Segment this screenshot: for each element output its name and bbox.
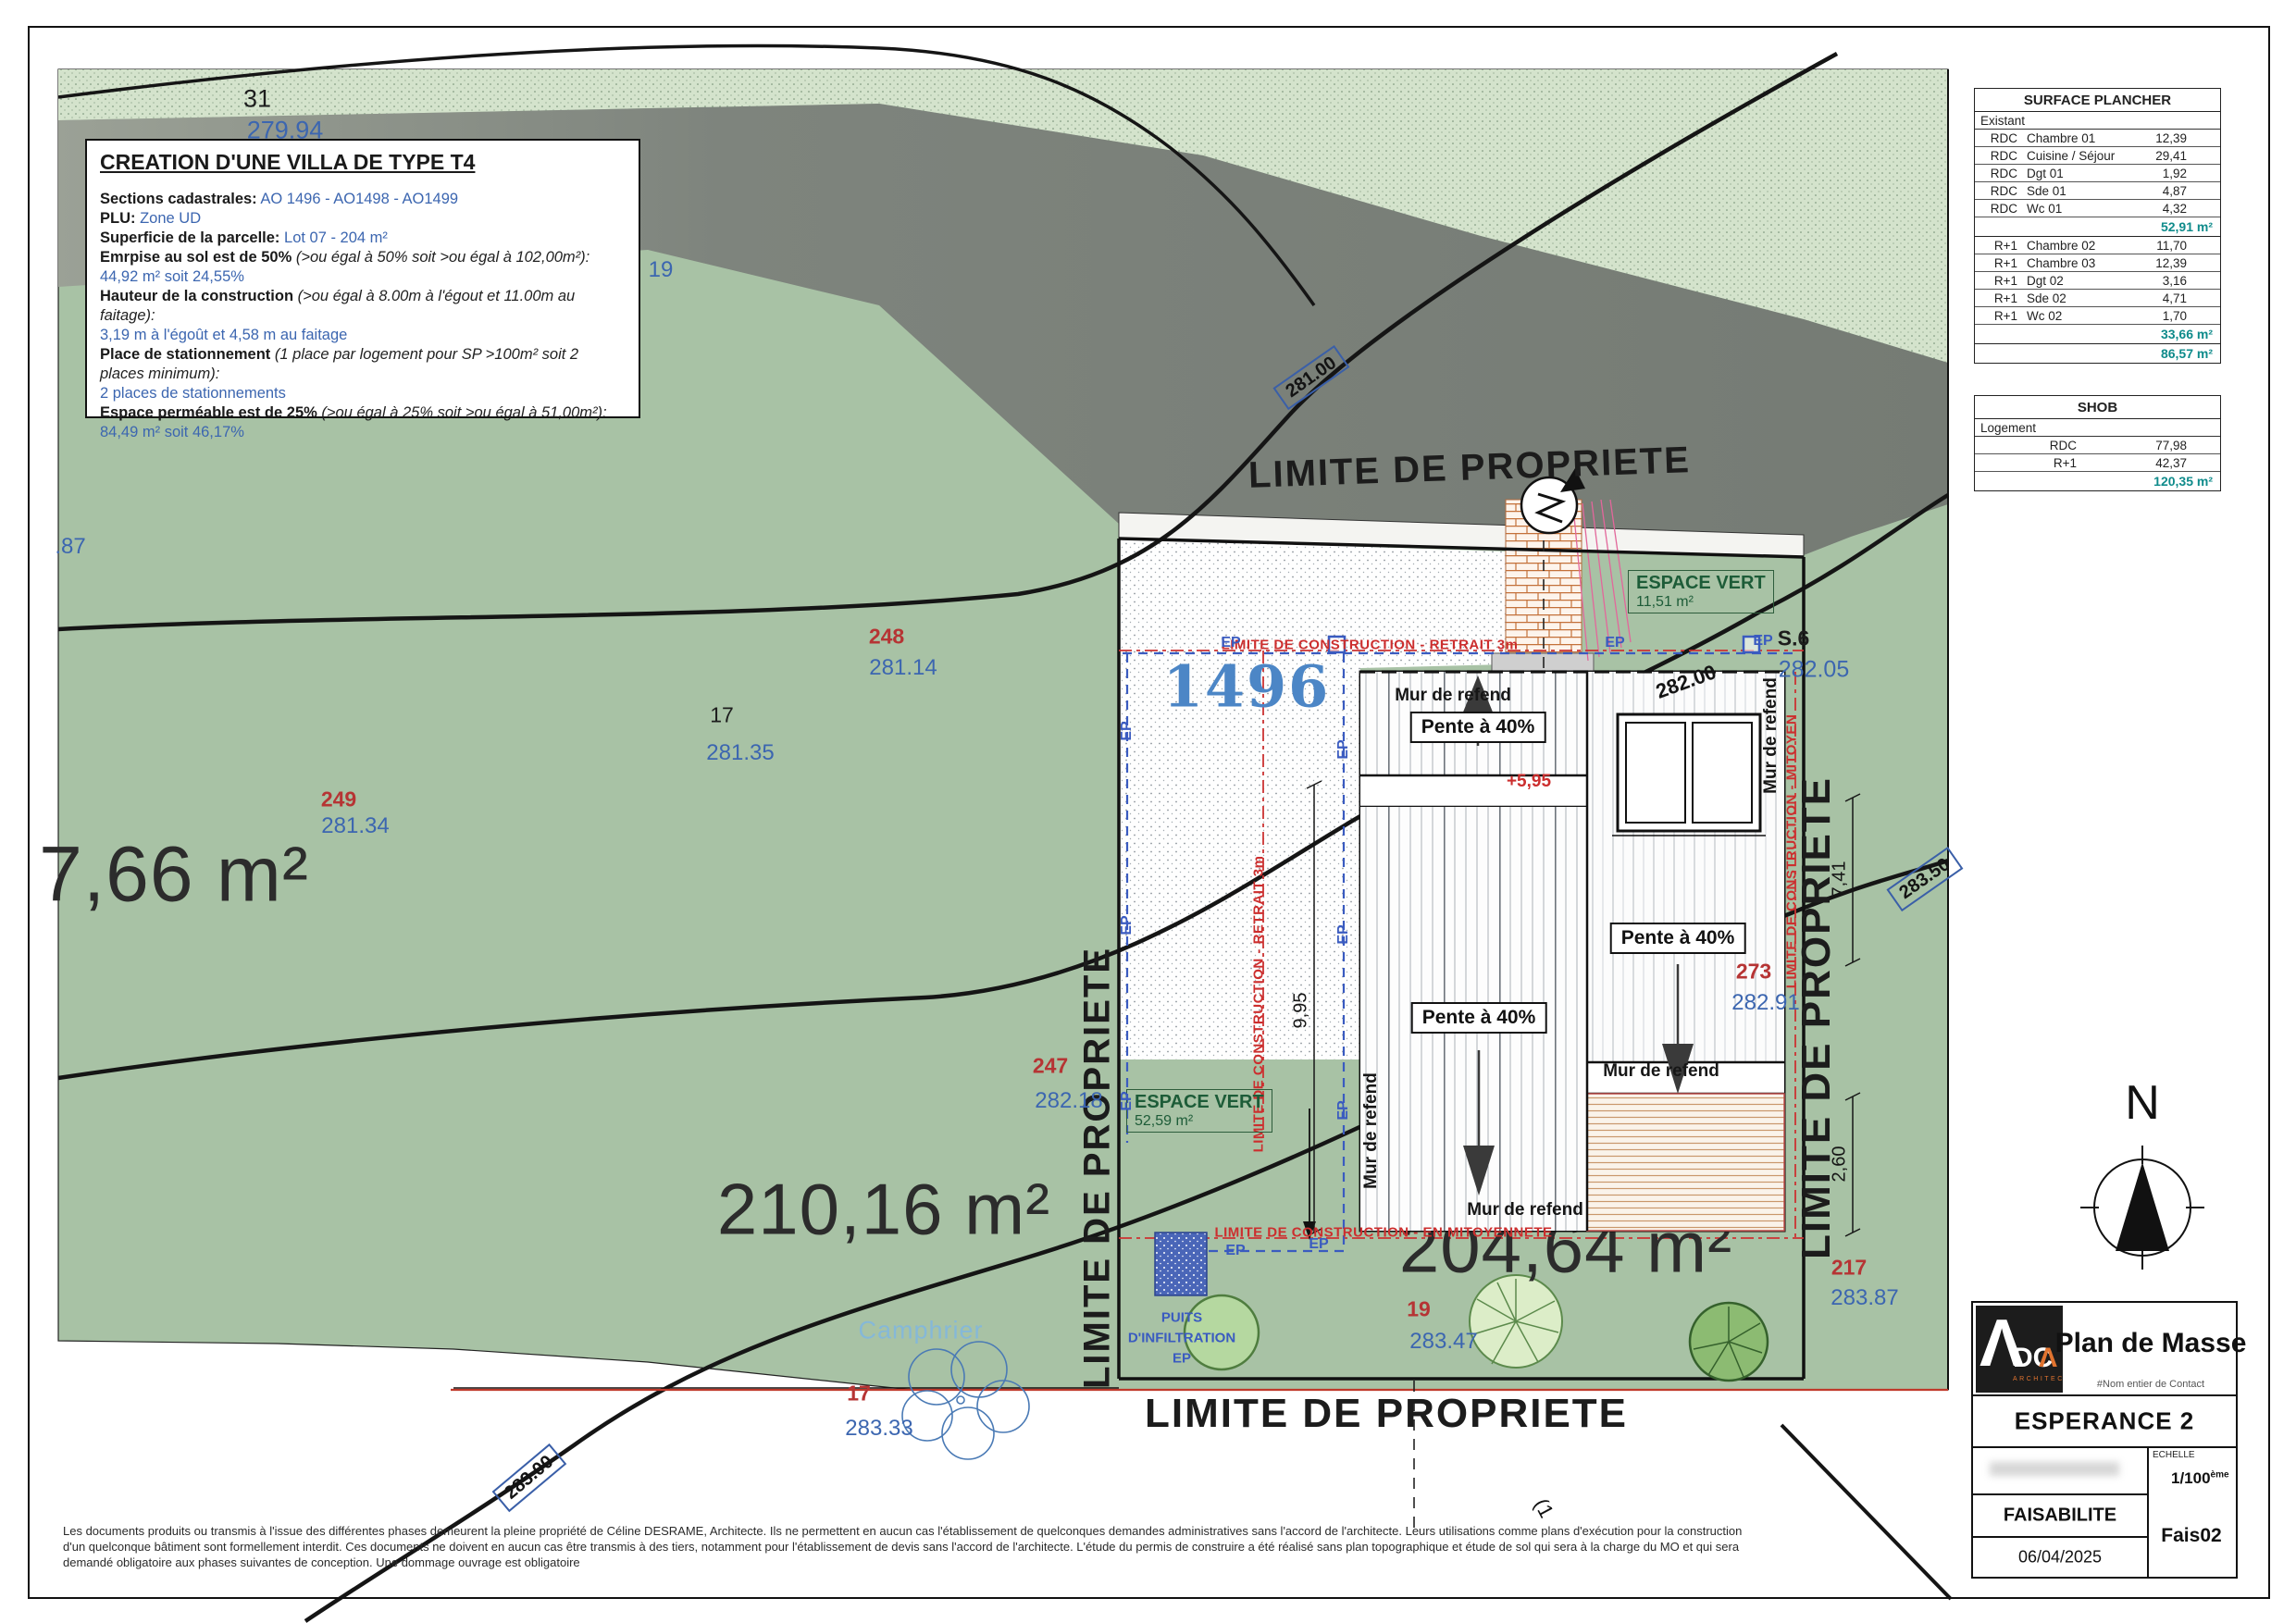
table-row: R+142,37	[1975, 454, 2220, 472]
info-line: Hauteur de la construction (>ou égal à 8…	[100, 287, 626, 326]
info-line: Emrpise au sol est de 50% (>ou égal à 50…	[100, 248, 626, 267]
redacted-client-name	[1990, 1462, 2119, 1476]
scale-label: ECHELLE	[2153, 1450, 2195, 1460]
table-total: 86,57 m²	[1975, 344, 2220, 363]
info-line-value: 3,19 m à l'égoût et 4,58 m au faitage	[100, 326, 626, 345]
disclaimer-line-2: d'un quelconque bâtiment sont formelleme…	[63, 1539, 1942, 1555]
surface-plancher-table: SURFACE PLANCHER Existant RDCChambre 011…	[1974, 88, 2221, 364]
disclaimer-text: Les documents produits ou transmis à l'i…	[63, 1523, 1942, 1570]
disclaimer-line-3: demandé obligatoire aux phases suivantes…	[63, 1555, 1942, 1570]
project-name: ESPERANCE 2	[2015, 1407, 2195, 1436]
table-row: R+1Dgt 023,16	[1975, 272, 2220, 290]
info-line-value: 2 places de stationnements	[100, 384, 626, 403]
reference-label: Fais02	[2161, 1525, 2221, 1547]
table-row: RDC77,98	[1975, 437, 2220, 454]
table-title: SHOB	[1975, 396, 2220, 419]
table-row: RDCChambre 0112,39	[1975, 130, 2220, 147]
info-line-value: 84,49 m² soit 46,17%	[100, 423, 626, 442]
tree-icon	[1185, 1295, 1259, 1369]
table-row: RDCSde 014,87	[1975, 182, 2220, 200]
table-row: RDCWc 014,32	[1975, 200, 2220, 217]
tree-icon	[1690, 1303, 1768, 1381]
info-line-value: 44,92 m² soit 24,55%	[100, 267, 626, 287]
area-label-center: 210,16 m²	[717, 1168, 1050, 1252]
info-line: Place de stationnement (1 place par loge…	[100, 345, 626, 384]
table-row: RDCDgt 011,92	[1975, 165, 2220, 182]
area-label-right: 204,64 m²	[1399, 1206, 1732, 1290]
plan-de-masse-sheet: 7,66 m² 210,16 m² 204,64 m²	[0, 0, 2296, 1623]
info-line: PLU: Zone UD	[100, 209, 626, 229]
north-compass-icon	[2080, 1146, 2204, 1270]
table-group: Existant	[1975, 112, 2220, 130]
table-total: 120,35 m²	[1975, 472, 2220, 490]
info-line: Espace perméable est de 25% (>ou égal à …	[100, 403, 626, 423]
sheet-title: Plan de Masse	[2055, 1328, 2247, 1359]
table-row: R+1Wc 021,70	[1975, 307, 2220, 325]
disclaimer-line-1: Les documents produits ou transmis à l'i…	[63, 1523, 1942, 1539]
area-label-left: 7,66 m²	[39, 830, 309, 920]
table-row: R+1Chambre 0312,39	[1975, 254, 2220, 272]
table-subtotal-rdc: 52,91 m²	[1975, 217, 2220, 237]
info-line: Superficie de la parcelle: Lot 07 - 204 …	[100, 229, 626, 248]
ep-box-left	[1329, 637, 1345, 652]
contact-placeholder: #Nom entier de Contact	[2097, 1379, 2204, 1390]
table-subtotal-r1: 33,66 m²	[1975, 325, 2220, 344]
adca-logo: Λ DC Λ ARCHITECTES	[1976, 1306, 2063, 1393]
entry-pad	[1492, 653, 1594, 703]
logo-subtitle: ARCHITECTES	[2013, 1376, 2063, 1382]
project-info-box: CREATION D'UNE VILLA DE TYPE T4 Sections…	[85, 139, 640, 418]
title-block: Λ DC Λ ARCHITECTES Plan de Masse #Nom en…	[1971, 1301, 2238, 1579]
table-row: R+1Chambre 0211,70	[1975, 237, 2220, 254]
table-row: RDCCuisine / Séjour29,41	[1975, 147, 2220, 165]
project-title: CREATION D'UNE VILLA DE TYPE T4	[100, 150, 626, 175]
infiltration-pit	[1155, 1233, 1207, 1295]
table-row: R+1Sde 024,71	[1975, 290, 2220, 307]
shob-table: SHOB Logement RDC77,98 R+142,37 120,35 m…	[1974, 395, 2221, 491]
date-label: 06/04/2025	[2018, 1548, 2102, 1567]
table-group: Logement	[1975, 419, 2220, 437]
phase-label: FAISABILITE	[2004, 1505, 2116, 1527]
ep-box-right	[1744, 637, 1759, 652]
scale-value: 1/100ème	[2171, 1469, 2229, 1488]
table-title: SURFACE PLANCHER	[1975, 89, 2220, 112]
info-line: Sections cadastrales: AO 1496 - AO1498 -…	[100, 190, 626, 209]
